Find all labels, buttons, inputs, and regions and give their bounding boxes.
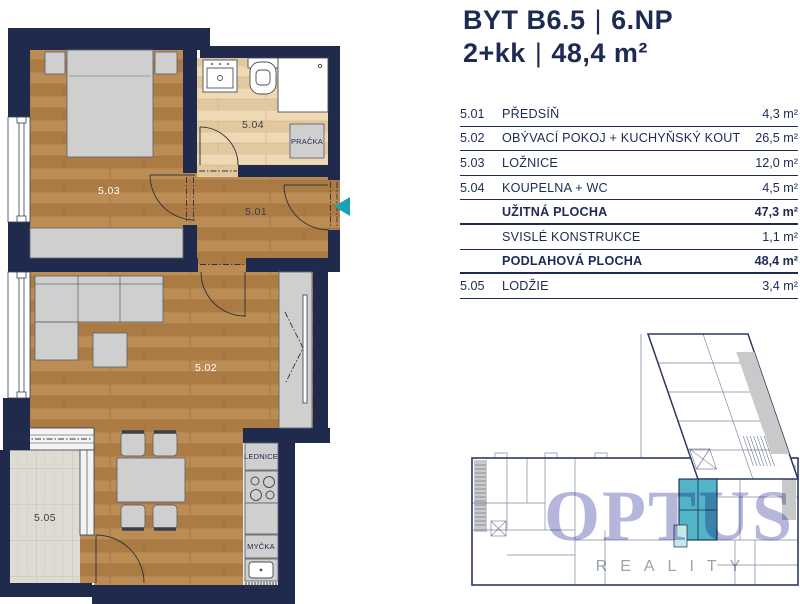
label-bathroom: 5.04 bbox=[242, 119, 264, 131]
label-living: 5.02 bbox=[195, 362, 217, 374]
table-row: 5.03LOŽNICE12,0 m² bbox=[460, 151, 798, 176]
nightstand-left bbox=[45, 52, 65, 74]
label-loggia: 5.05 bbox=[34, 512, 56, 524]
table-row-total-usable: UŽITNÁ PLOCHA47,3 m² bbox=[460, 200, 798, 225]
kitchen-counter: LEDNICE MYČKA bbox=[244, 443, 278, 589]
area-table: 5.01PŘEDSÍŇ4,3 m² 5.02OBÝVACÍ POKOJ + KU… bbox=[460, 102, 798, 299]
page-title: BYT B6.5|6.NP 2+kk|48,4 m² bbox=[463, 4, 673, 70]
coffee-table bbox=[93, 333, 127, 367]
washer-label: PRAČKA bbox=[291, 137, 323, 146]
dishwasher-label: MYČKA bbox=[247, 542, 275, 551]
fridge-label: LEDNICE bbox=[244, 452, 278, 461]
label-bedroom: 5.03 bbox=[98, 185, 120, 197]
title-line-1: BYT B6.5|6.NP bbox=[463, 4, 673, 37]
table-row: SVISLÉ KONSTRUKCE1,1 m² bbox=[460, 225, 798, 250]
table-row: 5.02OBÝVACÍ POKOJ + KUCHYŇSKÝ KOUT26,5 m… bbox=[460, 127, 798, 152]
title-line-2: 2+kk|48,4 m² bbox=[463, 37, 673, 70]
nightstand-right bbox=[155, 52, 177, 74]
table-row: 5.01PŘEDSÍŇ4,3 m² bbox=[460, 102, 798, 127]
keyplan-highlighted-unit bbox=[674, 479, 717, 547]
toilet bbox=[248, 58, 278, 94]
bathroom-sink bbox=[203, 60, 237, 92]
floor-plan: PRAČKA LEDNICE bbox=[0, 0, 455, 604]
apartment-card: PRAČKA LEDNICE bbox=[0, 0, 800, 604]
label-hall: 5.01 bbox=[245, 206, 267, 218]
washing-machine: PRAČKA bbox=[290, 124, 324, 158]
living-wardrobe bbox=[279, 272, 312, 428]
bed bbox=[67, 50, 153, 157]
bedroom-wardrobe bbox=[30, 228, 183, 258]
table-row: 5.04KOUPELNA + WC4,5 m² bbox=[460, 176, 798, 201]
building-key-plan bbox=[455, 325, 800, 604]
window-living bbox=[8, 272, 30, 398]
shower bbox=[278, 58, 328, 112]
window-bedroom bbox=[8, 117, 30, 222]
table-row: 5.05LODŽIE3,4 m² bbox=[460, 274, 798, 299]
table-row-total-floor: PODLAHOVÁ PLOCHA48,4 m² bbox=[460, 250, 798, 275]
